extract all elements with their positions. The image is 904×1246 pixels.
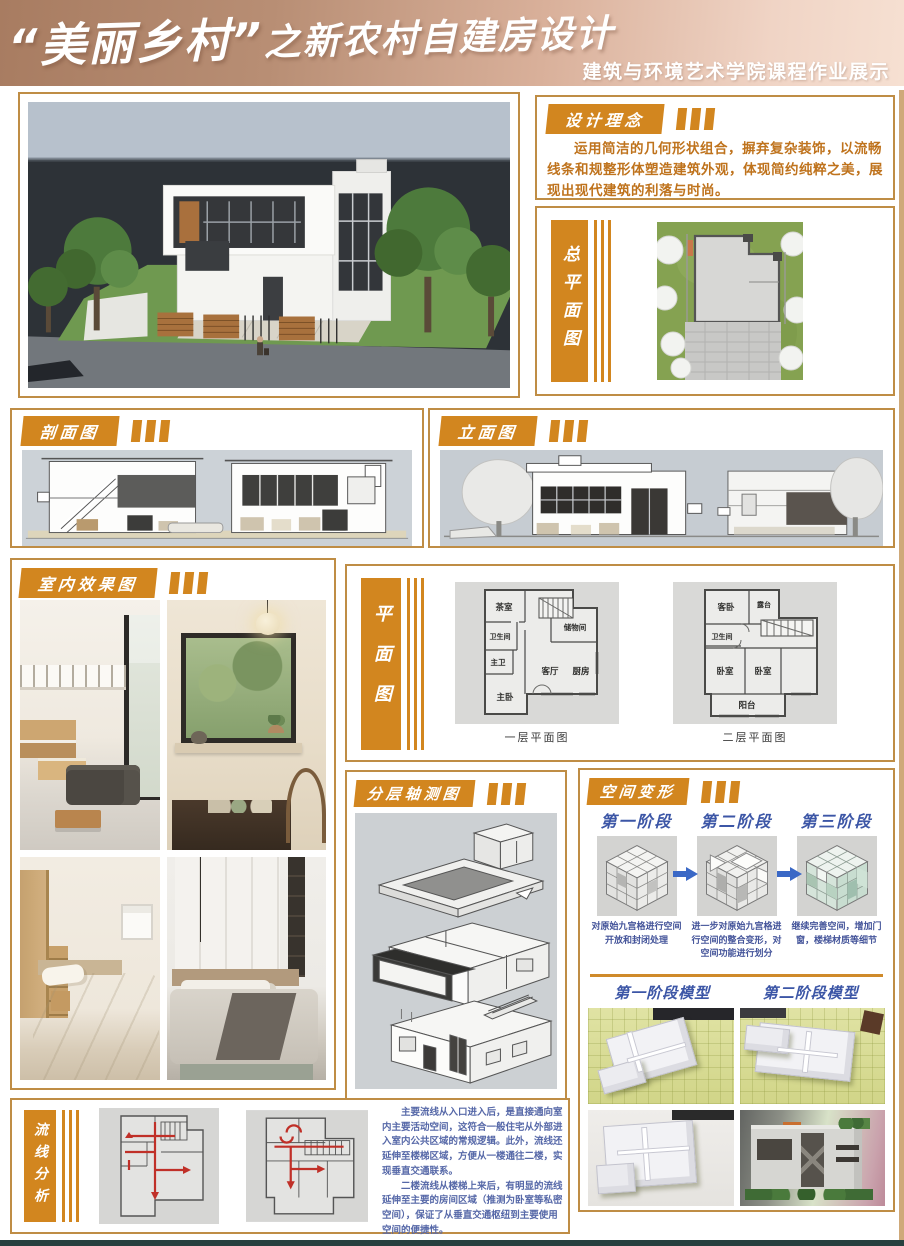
stage-2-title: 第二阶段 [700,808,772,832]
plan1-caption: 一层平面图 [455,729,619,745]
footer-bar [0,1240,904,1246]
arrow-right-icon [777,866,803,882]
sofa [66,765,140,805]
room-label: 主卫 [491,657,506,667]
accent-lines-icon [62,1110,79,1222]
model-shrubs [745,1189,873,1201]
elevation-label: 立面图 [438,416,537,446]
room-label: 厨房 [572,666,589,677]
foam-model-wing [596,1162,636,1193]
stage-3-caption: 继续完善空间，增加门窗，楼梯材质等细节 [788,921,885,948]
kitchen-cabinets [20,720,76,758]
teapot [191,731,207,744]
accent-bars-icon [488,783,525,805]
model-photo-finished [740,1110,886,1206]
desk-clutter [740,1008,787,1018]
potted-plant [267,715,284,733]
circulation-analysis-panel: 流线分析 [10,1098,570,1234]
panel-wall [175,857,280,973]
floor-plan-label: 平面图 [361,578,401,750]
section-illustration [22,450,412,546]
room-label: 卧室 [754,666,772,677]
rug [180,1064,314,1080]
transformation-stages: 第一阶段 对原始 [588,808,885,962]
poster-title: “美丽乡村”之新农村自建房设计 [7,0,615,76]
wall-art [121,904,153,940]
accent-bars-icon [170,572,207,594]
model-window-slits [836,1145,859,1151]
interior-photo-bedroom-2 [167,857,326,1080]
roof-accent [783,1122,800,1126]
model-photo-stage1-top [588,1110,734,1206]
title-rest: 之新农村自建房设计 [263,12,615,65]
stage-3-title: 第三阶段 [800,808,872,832]
model-titles-row: 第一阶段模型 第二阶段模型 [588,982,885,1003]
arrow-right-icon [673,866,699,882]
site-plan-panel: 总平面图 [535,206,895,396]
stage-2-cube-illustration [697,836,777,916]
coffee-table [55,810,101,828]
room-label: 客卧 [716,602,735,613]
stage-2: 第二阶段 [688,808,785,962]
elevation-illustration [440,450,883,546]
interior-render-panel: 室内效果图 [10,558,336,1090]
circulation-plan-floor1 [98,1108,220,1224]
model-photo-stage1 [588,1008,734,1104]
paved-courtyard [685,322,781,380]
desk-clutter [653,1008,733,1020]
room-label: 卧室 [716,666,734,677]
circulation-analysis-text: 主要流线从入口进入后，是直接通向室内主要活动空间，这符合一般住宅从外部进入室内公… [382,1106,564,1238]
accent-bars-icon [677,108,714,130]
room-label: 茶室 [494,602,513,613]
sky [28,102,510,160]
header-banner: “美丽乡村”之新农村自建房设计 建筑与环境艺术学院课程作业展示 [0,0,904,86]
interior-photo-living-room [20,600,160,850]
chair [286,768,326,843]
interior-photo-tea-room [167,600,326,850]
interior-photo-grid [20,600,326,1080]
first-floor-plan: 茶室 卫生间 主卫 主卧 储物间 客厅 厨房 一层平面图 [455,582,619,745]
site-plan-illustration [657,222,803,380]
section-drawing-panel: 剖面图 [10,408,424,548]
stage-1: 第一阶段 对原始 [588,808,685,962]
stage-2-caption: 进一步对原始九宫格进行空间的整合变形，对空间功能进行划分 [688,921,785,962]
plan2-caption: 二层平面图 [673,729,837,745]
section-left [38,459,204,533]
section-drawing-label: 剖面图 [20,416,119,446]
axonometric-label: 分层轴测图 [354,780,476,807]
accent-lines-icon [594,220,611,382]
section-right [225,461,393,533]
circulation-paragraph-2: 二楼流线从楼梯上来后，有明显的流线延伸至主要的房间区域（推测为卧室等私密空间），… [382,1180,564,1239]
room-label: 主卧 [496,692,514,703]
room-label: 卫生间 [712,632,733,641]
poster-board: “美丽乡村”之新农村自建房设计 建筑与环境艺术学院课程作业展示 [0,0,904,1246]
exterior-render-illustration [28,102,510,388]
stairs [761,620,813,636]
stage-1-cube-illustration [597,836,677,916]
circulation-label: 流线分析 [24,1110,56,1222]
site-plan-label: 总平面图 [551,220,588,382]
axonometric-panel: 分层轴测图 [345,770,567,1100]
pendant-cord [200,857,201,942]
room-label: 客厅 [540,666,559,677]
elevation-panel: 立面图 [428,408,895,548]
lamp-cord [267,600,268,613]
title-quote: “美丽乡村” [7,12,264,73]
space-transformation-label: 空间变形 [587,778,690,805]
accent-lines-icon [407,578,424,750]
accent-bars-icon [702,781,739,803]
model-photo-grid [588,1008,885,1206]
interior-photo-bedroom-1 [20,857,160,1080]
stage-1-caption: 对原始九宫格进行空间开放和封闭处理 [588,921,685,948]
model-2-title: 第二阶段模型 [763,982,859,1003]
floor-plan-panel: 平面图 [345,564,895,762]
shelf-column [288,857,305,977]
model-door [801,1133,824,1187]
stage-3-cube-illustration [797,836,877,916]
room-label: 阳台 [738,700,756,711]
stairs [539,598,573,618]
model-window [757,1139,792,1160]
right-edge-trim [899,90,904,1240]
circulation-paragraph-1: 主要流线从入口进入后，是直接通向室内主要活动空间，这符合一般住宅从外部进入室内公… [382,1106,564,1180]
accent-bars-icon [550,420,587,442]
interior-label: 室内效果图 [18,568,157,598]
pendant-lamp [256,613,280,636]
design-concept-panel: 设计理念 运用简洁的几何形状组合，摒弃复杂装饰，以流畅线条和规整形体塑造建筑外观… [535,95,895,200]
first-floor-plan-drawing: 茶室 卫生间 主卫 主卧 储物间 客厅 厨房 [455,582,619,724]
divider [590,974,883,977]
bed [33,973,159,1080]
desk-clutter [672,1110,733,1120]
space-transformation-panel: 空间变形 第一阶段 [578,768,895,1212]
room-label: 露台 [757,600,771,609]
wood-block [860,1010,884,1035]
room-label: 卫生间 [490,632,511,641]
roof-garden [838,1118,870,1130]
second-floor-plan-drawing: 客卧 露台 卫生间 卧室 卧室 阳台 [673,582,837,724]
axonometric-illustration [355,813,557,1089]
hero-render-panel [18,92,520,398]
design-concept-text: 运用简洁的几何形状组合，摒弃复杂装饰，以流畅线条和规整形体塑造建筑外观，体现简约… [547,139,883,202]
room-label: 储物间 [564,622,587,632]
poster-subtitle: 建筑与环境艺术学院课程作业展示 [582,57,890,84]
stage-3: 第三阶段 [788,808,885,962]
window-sill [175,743,302,753]
accent-bars-icon [132,420,169,442]
teaware [208,800,272,813]
loft-railing [20,665,126,690]
model-1-title: 第一阶段模型 [614,982,710,1003]
second-floor-plan: 客卧 露台 卫生间 卧室 卧室 阳台 二层平面图 [673,582,837,745]
model-photo-stage2 [740,1008,886,1104]
stage-1-title: 第一阶段 [600,808,672,832]
circulation-plan-floor2 [246,1110,368,1222]
design-concept-label: 设计理念 [545,104,664,134]
